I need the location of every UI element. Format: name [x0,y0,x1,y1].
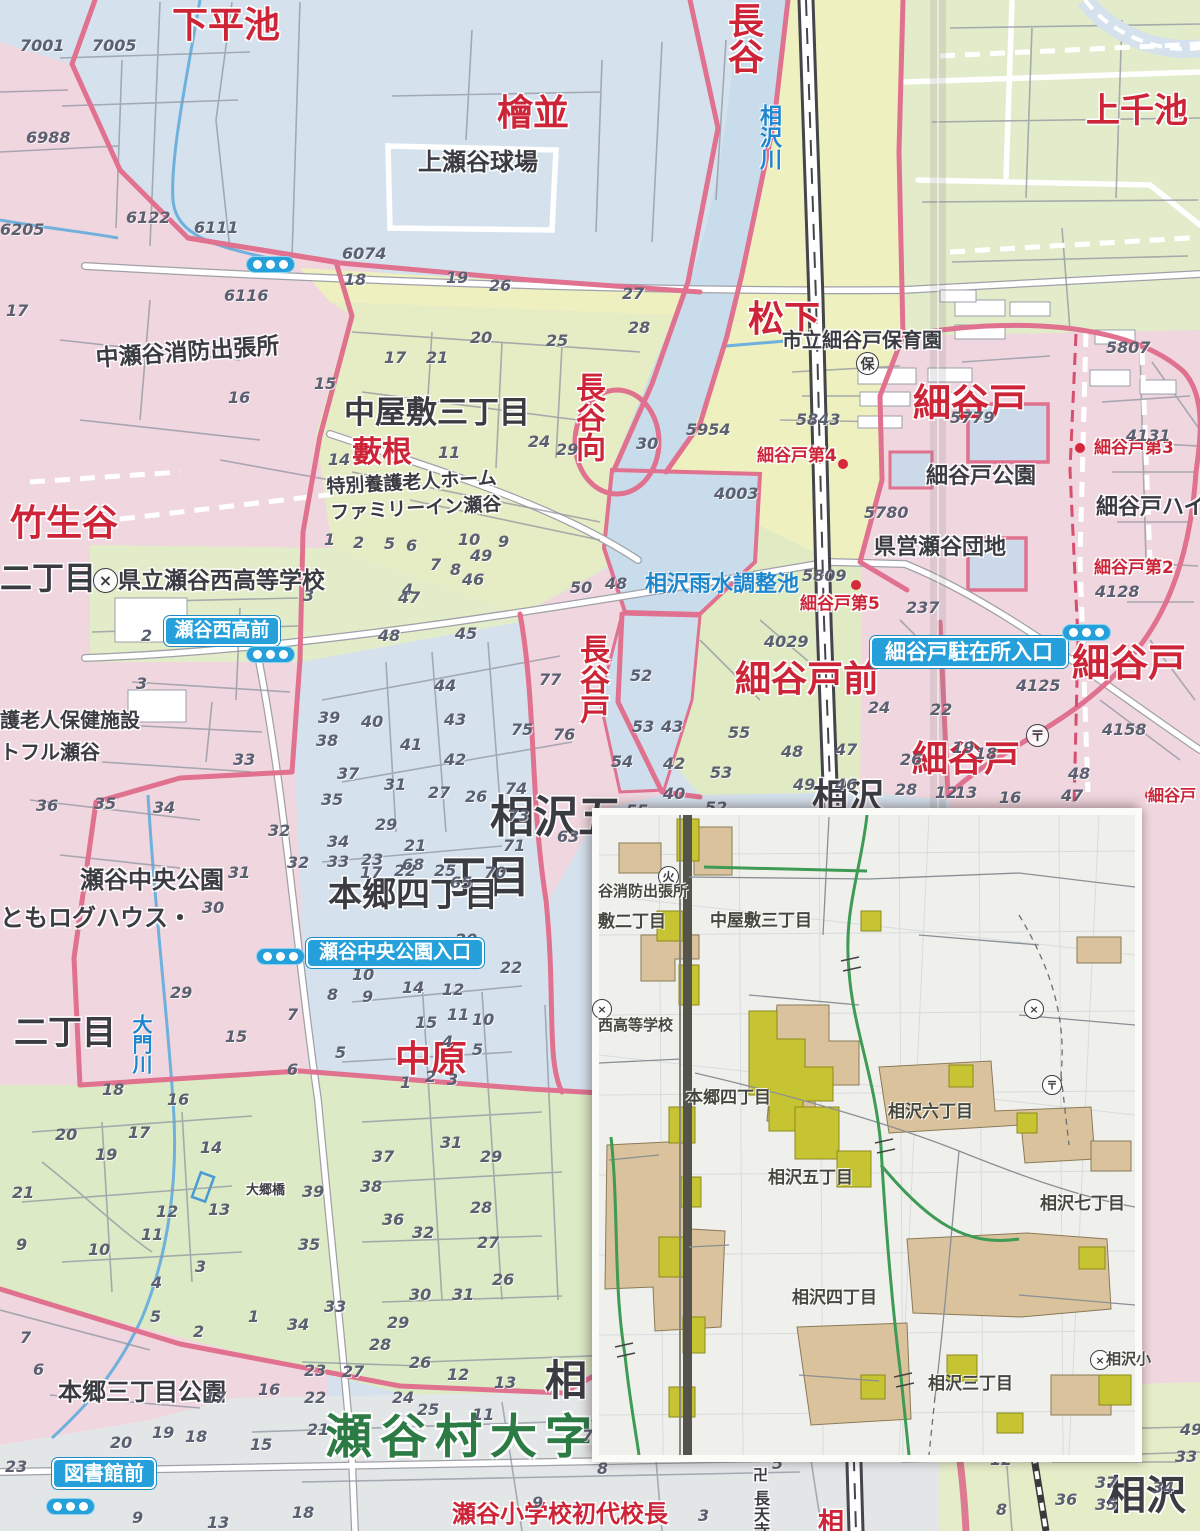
inset-district-label: 本郷四丁目 [686,1090,771,1107]
inset-district-label: 相沢三丁目 [928,1376,1013,1393]
inset-district-label: 中屋敷三丁目 [710,913,812,930]
inset-district-label: 谷消防出張所 [598,884,688,899]
inset-district-label: 相沢六丁目 [888,1104,973,1121]
residential-map-page[interactable]: 下平池檜並長谷上千池松下細谷戸藪根長谷向竹生谷長谷戸細谷戸前細谷戸細谷戸中原相細… [0,0,1200,1531]
inset-district-label: 相沢七丁目 [1040,1196,1125,1213]
post-office-icon: 〒 [1042,1075,1062,1095]
inset-district-label: 西高等学校 [598,1018,673,1033]
inset-district-label: 敷二丁目 [598,914,666,931]
inset-district-label: 相沢五丁目 [768,1170,853,1187]
school-icon: × [1024,999,1044,1019]
inset-district-label: 相沢小 [1106,1352,1151,1367]
inset-district-label: 相沢四丁目 [792,1290,877,1307]
inset-label-layer: 火××〒×谷消防出張所敷二丁目中屋敷三丁目西高等学校本郷四丁目相沢六丁目相沢五丁… [0,0,1200,1531]
